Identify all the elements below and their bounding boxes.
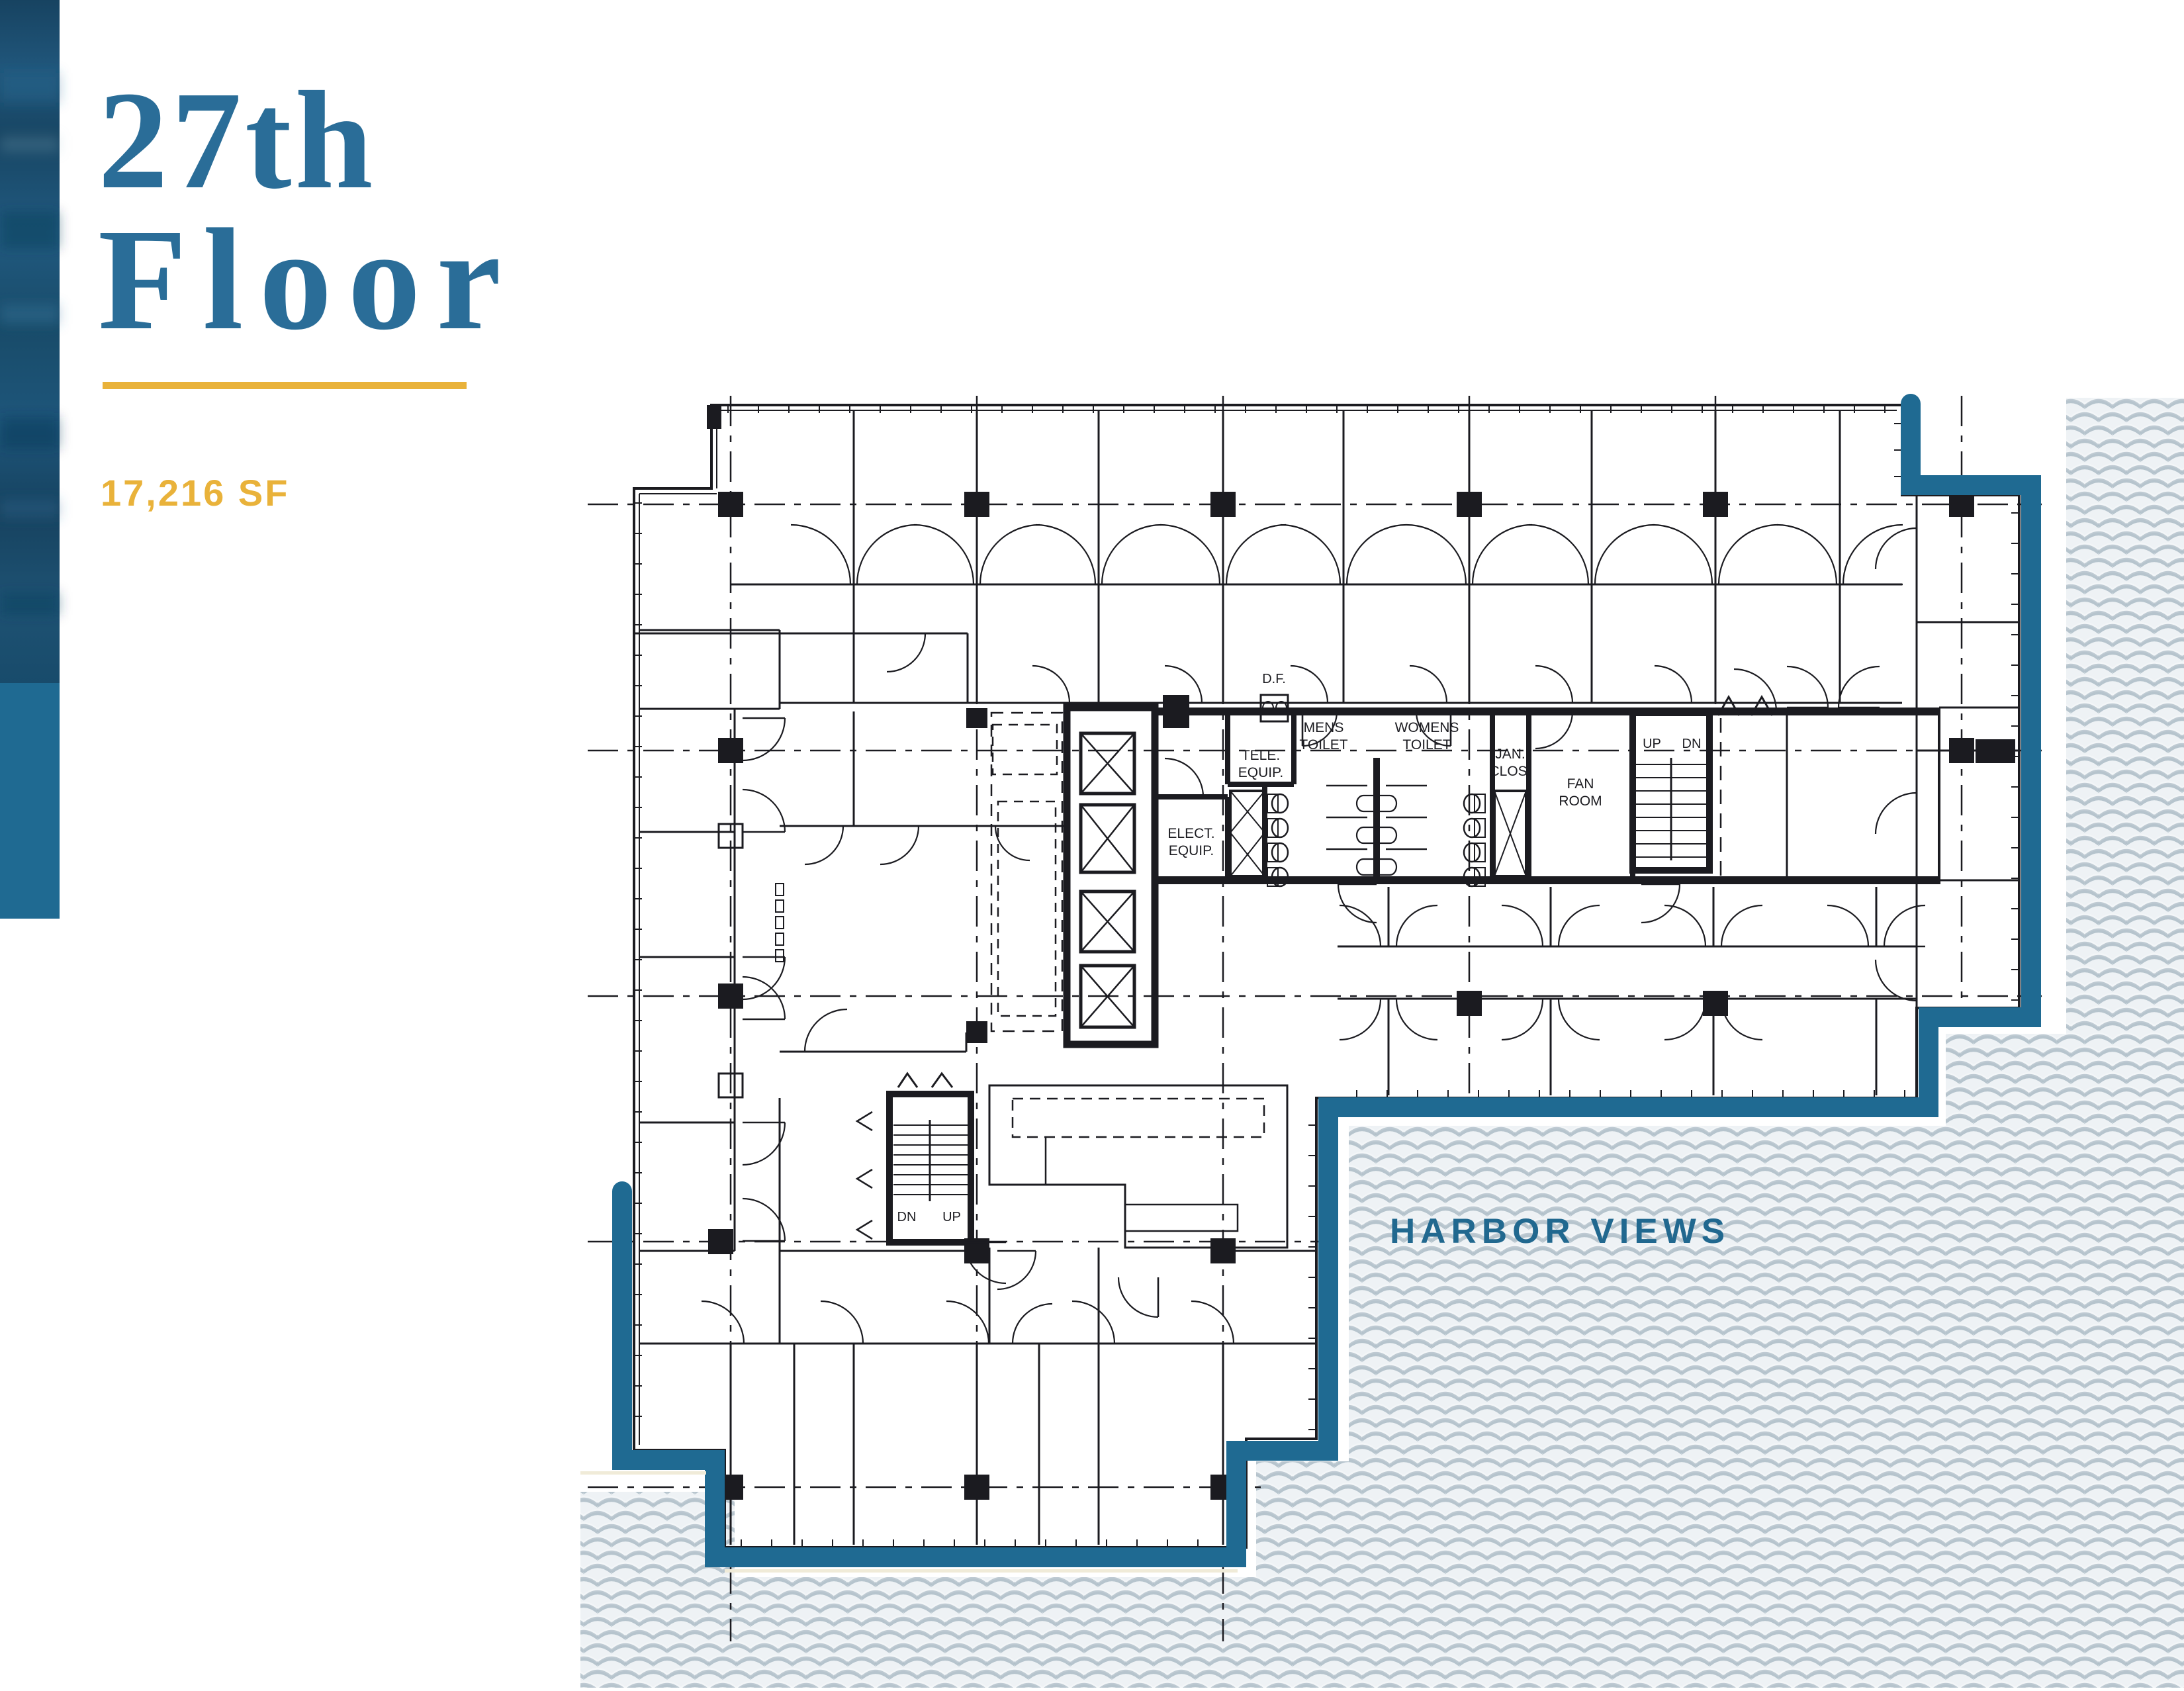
svg-text:Floor: Floor (98, 199, 517, 360)
svg-text:ELECT.: ELECT. (1167, 826, 1214, 841)
svg-text:HARBOR VIEWS: HARBOR VIEWS (1390, 1212, 1730, 1251)
svg-text:D.F.: D.F. (1262, 672, 1286, 686)
svg-text:WOMENS: WOMENS (1395, 720, 1459, 735)
svg-text:DN: DN (1682, 737, 1702, 751)
svg-text:TELE.: TELE. (1242, 748, 1280, 763)
svg-text:ROOM: ROOM (1559, 794, 1602, 809)
svg-text:27th: 27th (98, 62, 377, 218)
svg-text:UP: UP (942, 1210, 961, 1224)
svg-text:TOILET: TOILET (1299, 737, 1347, 753)
svg-text:JAN.: JAN. (1495, 747, 1525, 762)
svg-text:EQUIP.: EQUIP. (1169, 843, 1214, 858)
svg-text:UP: UP (1643, 737, 1661, 751)
svg-text:FAN: FAN (1567, 776, 1594, 792)
svg-text:EQUIP.: EQUIP. (1238, 765, 1283, 780)
svg-text:17,216 SF: 17,216 SF (101, 472, 289, 514)
svg-text:CLOS.: CLOS. (1489, 764, 1531, 779)
svg-text:DN: DN (897, 1210, 917, 1224)
svg-text:MENS: MENS (1304, 720, 1344, 735)
